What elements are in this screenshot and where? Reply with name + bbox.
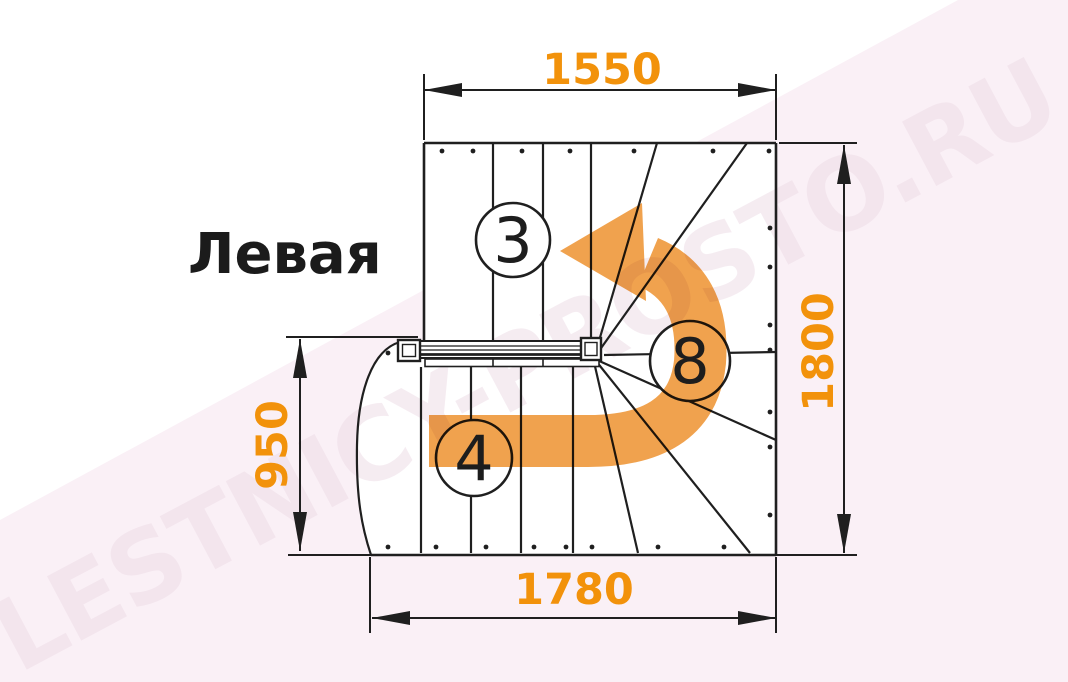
dimension-left-value: 950 (248, 400, 298, 490)
step-count-winders: 8 (670, 325, 709, 398)
entry-tread-beam (398, 338, 601, 367)
dimension-top-value: 1550 (542, 45, 662, 95)
dimension-right-value: 1800 (794, 292, 844, 412)
beam-right-cap-newel (581, 338, 601, 360)
step-count-upper-flight: 3 (493, 204, 532, 277)
beam-left-cap (398, 340, 420, 361)
diagram-title: Левая (188, 222, 382, 287)
step-count-lower-flight: 4 (454, 422, 493, 495)
dimension-bottom-value: 1780 (514, 565, 634, 615)
staircase-plan-drawing: LESTNICY-PROSTO.RU (0, 0, 1068, 682)
staircase-plan-page: LESTNICY-PROSTO.RU (0, 0, 1068, 682)
